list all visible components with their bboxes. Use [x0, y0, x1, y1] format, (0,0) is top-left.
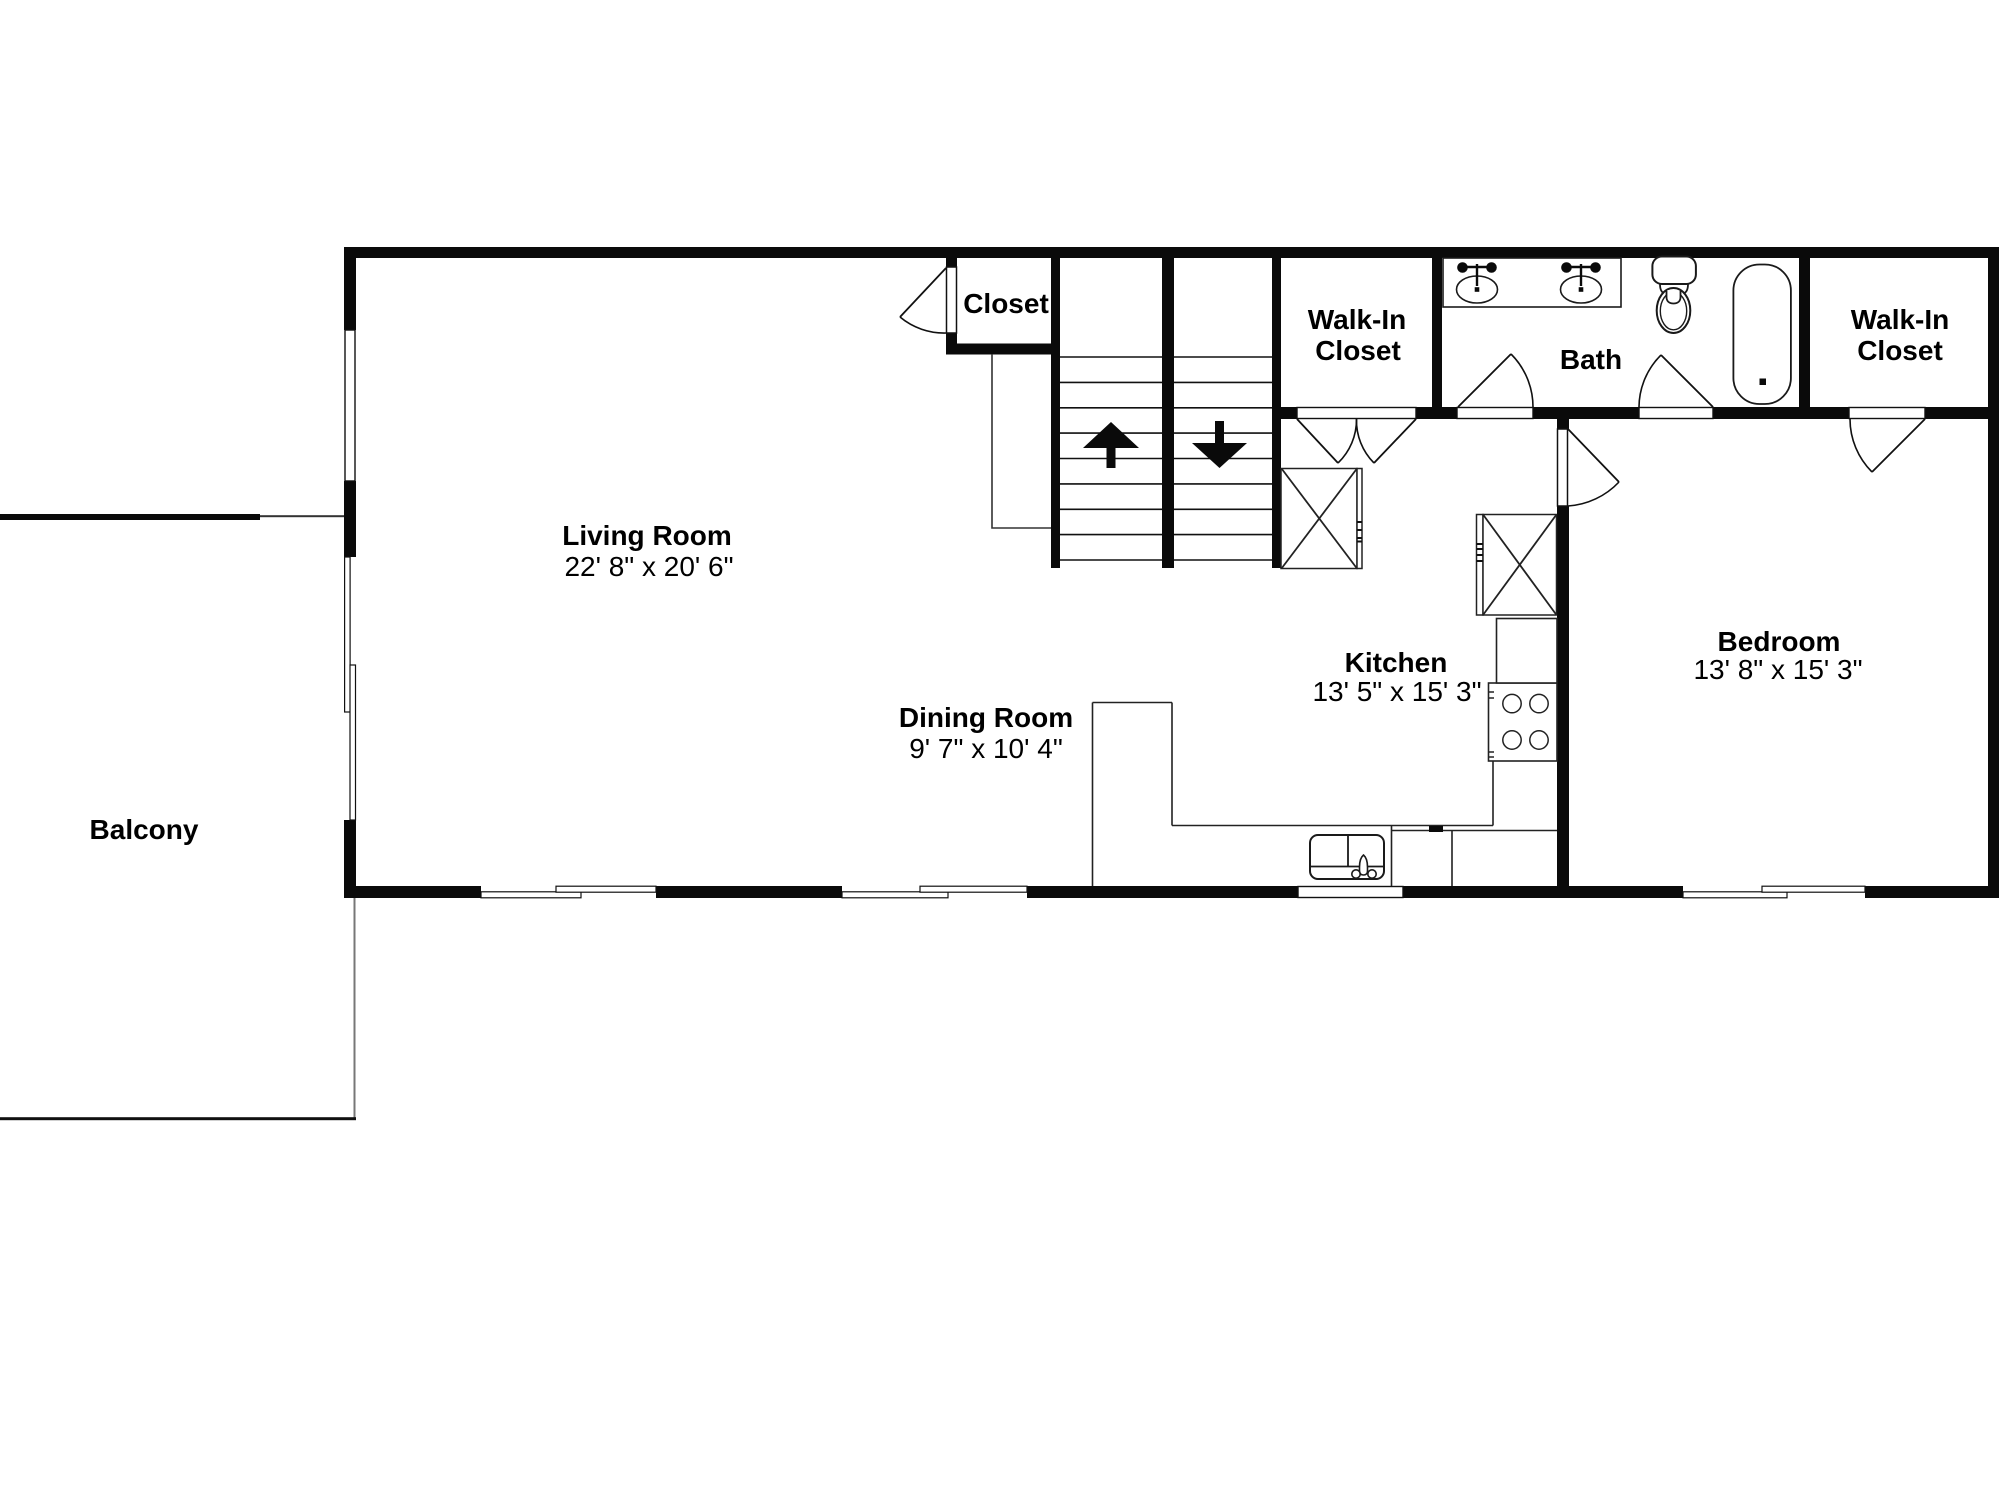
- svg-text:9' 7" x 10' 4": 9' 7" x 10' 4": [909, 733, 1063, 764]
- svg-text:Kitchen: Kitchen: [1345, 647, 1448, 678]
- svg-text:Walk-In: Walk-In: [1308, 304, 1407, 335]
- svg-text:Walk-In: Walk-In: [1851, 304, 1950, 335]
- svg-text:Closet: Closet: [1857, 335, 1943, 366]
- svg-text:Balcony: Balcony: [90, 814, 199, 845]
- svg-text:Bath: Bath: [1560, 344, 1622, 375]
- svg-text:Closet: Closet: [963, 288, 1049, 319]
- svg-text:13' 8" x 15' 3": 13' 8" x 15' 3": [1693, 654, 1862, 685]
- svg-text:22' 8" x 20' 6": 22' 8" x 20' 6": [564, 551, 733, 582]
- svg-text:13' 5" x 15' 3": 13' 5" x 15' 3": [1312, 676, 1481, 707]
- svg-text:Living Room: Living Room: [562, 520, 732, 551]
- svg-text:Bedroom: Bedroom: [1718, 626, 1841, 657]
- svg-text:Dining Room: Dining Room: [899, 702, 1073, 733]
- svg-text:Closet: Closet: [1315, 335, 1401, 366]
